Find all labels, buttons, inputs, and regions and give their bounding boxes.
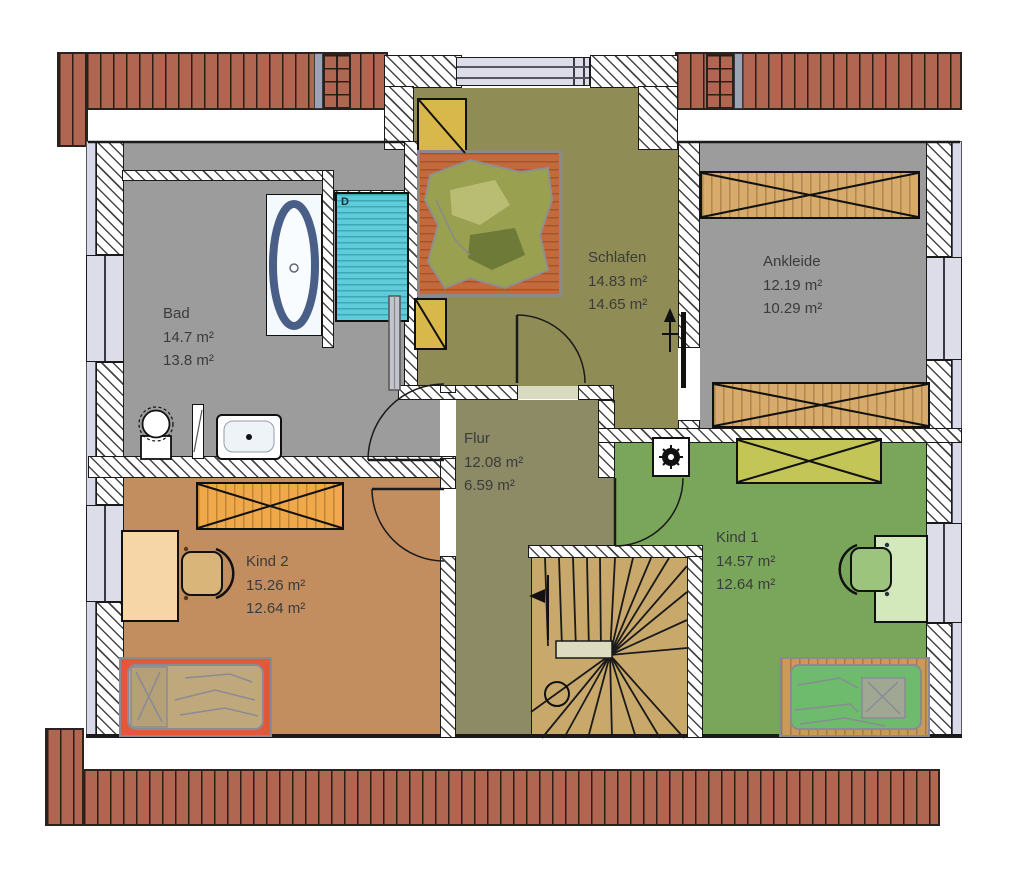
bed-schlafen [417, 150, 562, 297]
staircase-floor [531, 558, 687, 738]
window-left-bad [86, 255, 124, 362]
room-name: Kind 2 [246, 550, 305, 574]
window-right-kind1 [926, 523, 962, 623]
window-left-kind2 [86, 505, 124, 602]
room-label-kind1: Kind 1 14.57 m² 12.64 m² [716, 526, 775, 597]
roof-band-top-left-step [57, 52, 88, 147]
wardrobe-ankleide-top [700, 171, 920, 219]
wardrobe-kind2 [196, 482, 344, 530]
room-flur-floor-lower [456, 545, 531, 738]
wall-flur-kind2-b [440, 458, 456, 489]
floor-plan-canvas: D [0, 0, 1024, 880]
room-area-net: 12.64 m² [246, 597, 305, 621]
roof-window-grid-right [706, 53, 734, 109]
room-label-flur: Flur 12.08 m² 6.59 m² [464, 427, 523, 498]
roof-band-bottom-step [45, 728, 84, 826]
dormer-wall-right-side [638, 86, 678, 150]
wall-flur-kind2-a [440, 385, 456, 393]
dormer-wall-left-top [384, 55, 462, 88]
threshold-schlafen-door [518, 386, 578, 399]
room-area-gross: 14.57 m² [716, 550, 775, 574]
room-name: Kind 1 [716, 526, 775, 550]
room-area-net: 10.29 m² [763, 297, 822, 321]
exterior-wall-left-b [96, 362, 124, 505]
wall-stair-right [687, 556, 703, 738]
shower-tray: D [335, 192, 409, 322]
wardrobe-kind1 [736, 438, 882, 484]
wall-flur-top-left [398, 385, 518, 400]
wall-bath-niche [322, 170, 334, 348]
bathtub [266, 194, 322, 336]
bed-kind2-blanket [127, 664, 264, 730]
vent-symbol-box [652, 437, 690, 477]
room-area-gross: 12.08 m² [464, 451, 523, 475]
room-area-gross: 14.83 m² [588, 270, 647, 294]
exterior-wall-left-outer [86, 141, 96, 738]
room-name: Flur [464, 427, 523, 451]
sink-partition [192, 404, 204, 459]
room-label-ankleide: Ankleide 12.19 m² 10.29 m² [763, 250, 822, 321]
room-name: Schlafen [588, 246, 647, 270]
room-area-net: 13.8 m² [163, 349, 214, 373]
wall-flur-kind2-c [440, 556, 456, 738]
room-name: Ankleide [763, 250, 822, 274]
room-area-net: 6.59 m² [464, 474, 523, 498]
wall-bad-kind2 [88, 456, 456, 478]
roof-band-bottom [82, 769, 940, 826]
room-area-gross: 15.26 m² [246, 574, 305, 598]
room-area-gross: 14.7 m² [163, 326, 214, 350]
room-area-net: 14.65 m² [588, 293, 647, 317]
exterior-wall-right-a [926, 141, 952, 257]
wall-flur-top-right [578, 385, 614, 400]
knee-wall-bad [122, 170, 334, 181]
wardrobe-ankleide-bottom [712, 382, 930, 428]
room-area-net: 12.64 m² [716, 573, 775, 597]
wall-stair-top [528, 545, 703, 558]
room-area-gross: 12.19 m² [763, 274, 822, 298]
room-label-schlafen: Schlafen 14.83 m² 14.65 m² [588, 246, 647, 317]
room-name: Bad [163, 302, 214, 326]
desk-kind2 [121, 530, 179, 622]
room-label-bad: Bad 14.7 m² 13.8 m² [163, 302, 214, 373]
roof-window-grid-left [323, 53, 351, 109]
roof-ridge-stripe-right [734, 53, 743, 109]
desk-kind1 [874, 535, 928, 623]
window-right-ankleide [926, 257, 962, 360]
bed-kind1-blanket [790, 664, 922, 730]
dormer-window [456, 57, 590, 86]
dormer-wall-right-top [590, 55, 678, 88]
wall-schlafen-ankleide-a [678, 141, 700, 348]
skylight-schlafen-bottom [414, 298, 447, 350]
exterior-wall-left-a [96, 141, 124, 255]
roof-ridge-stripe-left [314, 53, 323, 109]
room-label-kind2: Kind 2 15.26 m² 12.64 m² [246, 550, 305, 621]
room-schlafen-floor-ext [614, 392, 678, 428]
skylight-schlafen-top [417, 98, 467, 155]
shower-door-label: D [341, 196, 349, 208]
